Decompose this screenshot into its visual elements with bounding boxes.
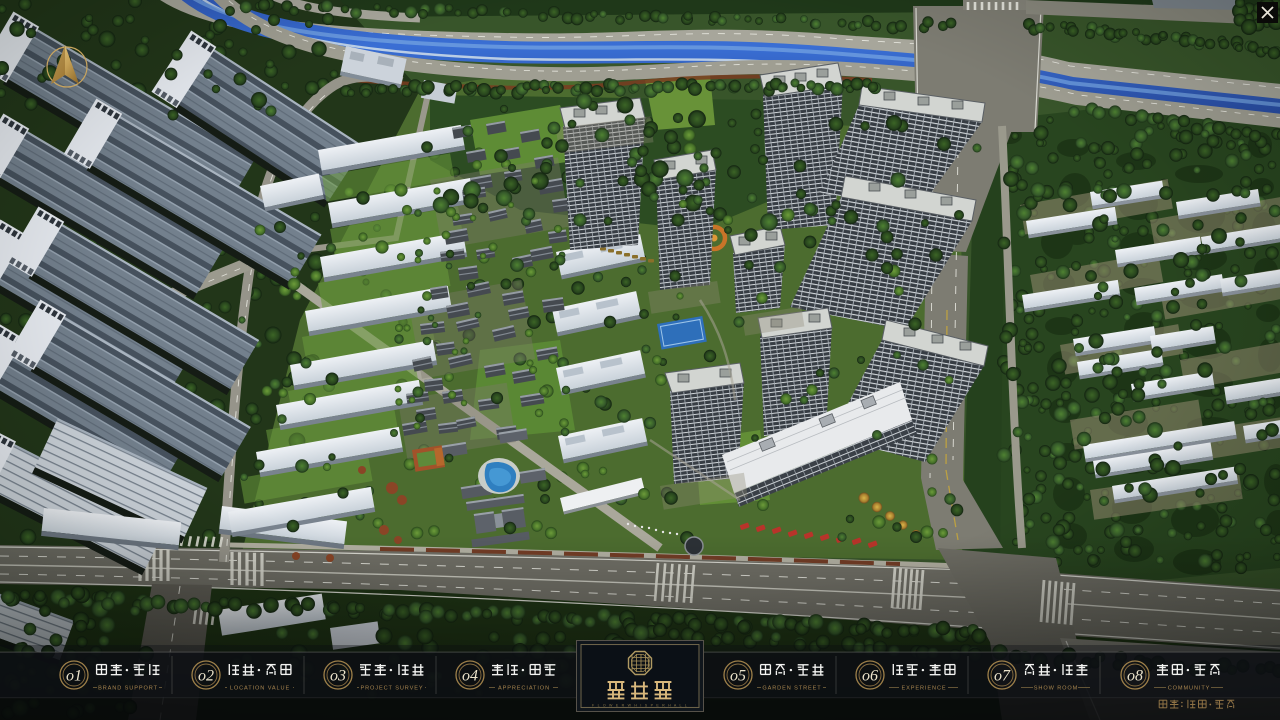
svg-text:GARDEN STREET: GARDEN STREET: [762, 686, 821, 692]
svg-text:o2: o2: [198, 668, 214, 685]
svg-text:PROJECT SURVEY: PROJECT SURVEY: [360, 686, 423, 692]
svg-text:o3: o3: [330, 668, 346, 685]
svg-text:o4: o4: [462, 668, 478, 685]
svg-text:o5: o5: [730, 668, 746, 685]
svg-text:o8: o8: [1127, 668, 1143, 685]
svg-text:BRAND SUPPORT: BRAND SUPPORT: [98, 686, 158, 692]
svg-text:o7: o7: [994, 668, 1011, 685]
svg-text:o6: o6: [862, 668, 878, 685]
svg-text:COMMUNITY: COMMUNITY: [1168, 686, 1211, 692]
svg-text:SHOW ROOM: SHOW ROOM: [1034, 686, 1078, 692]
svg-text:F L O W E R W H I S P E R H: F L O W E R W H I S P E R H A L L: [592, 704, 688, 708]
svg-text:LOCATION VALUE: LOCATION VALUE: [230, 686, 290, 692]
svg-text:EXPERIENCE: EXPERIENCE: [901, 686, 946, 692]
svg-text:o1: o1: [66, 668, 82, 685]
svg-text:APPRECIATION: APPRECIATION: [498, 686, 550, 692]
